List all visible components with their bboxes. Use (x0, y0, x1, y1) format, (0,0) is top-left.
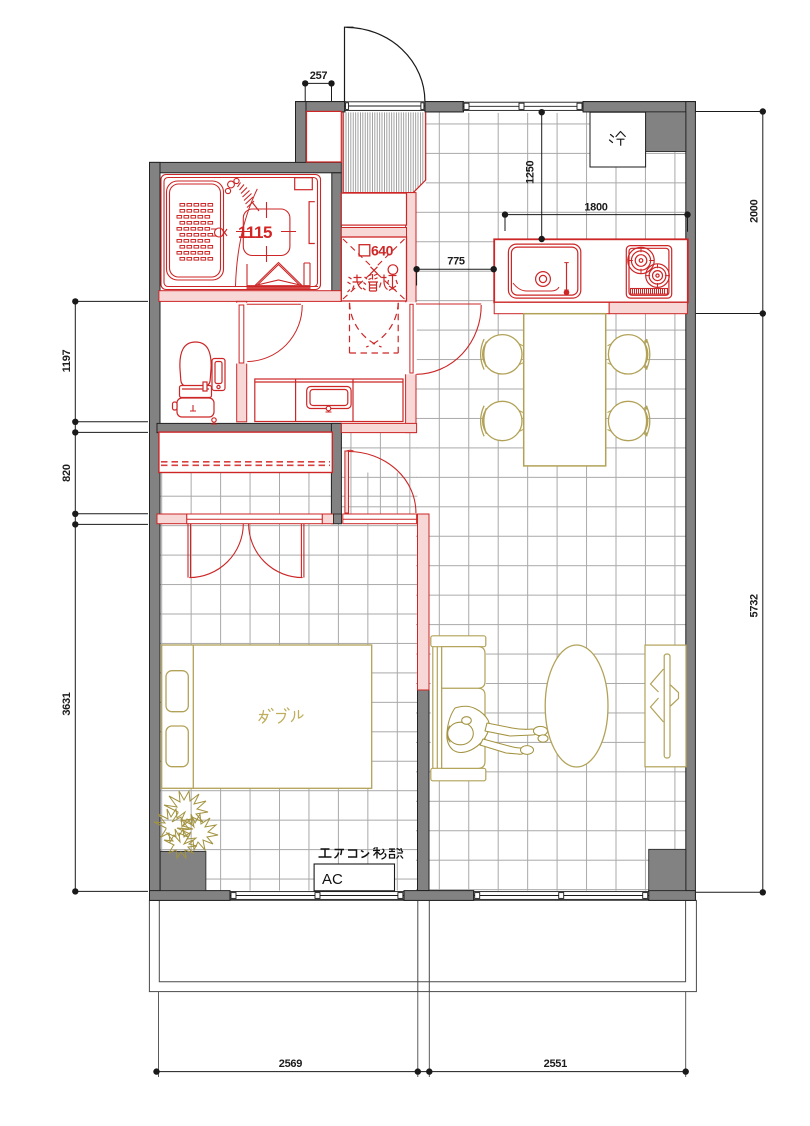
svg-text:640: 640 (371, 243, 394, 259)
svg-text:775: 775 (447, 256, 465, 268)
svg-text:257: 257 (310, 70, 328, 82)
svg-text:1250: 1250 (525, 160, 537, 183)
svg-text:5732: 5732 (749, 594, 761, 617)
svg-text:2569: 2569 (279, 1058, 302, 1070)
svg-text:2551: 2551 (544, 1058, 567, 1070)
svg-text:1197: 1197 (61, 349, 73, 372)
svg-text:3631: 3631 (61, 692, 73, 715)
svg-text:1115: 1115 (238, 223, 272, 242)
svg-text:1800: 1800 (584, 202, 607, 214)
svg-text:2000: 2000 (749, 199, 761, 222)
svg-text:820: 820 (61, 464, 73, 482)
svg-text:AC: AC (322, 871, 343, 888)
